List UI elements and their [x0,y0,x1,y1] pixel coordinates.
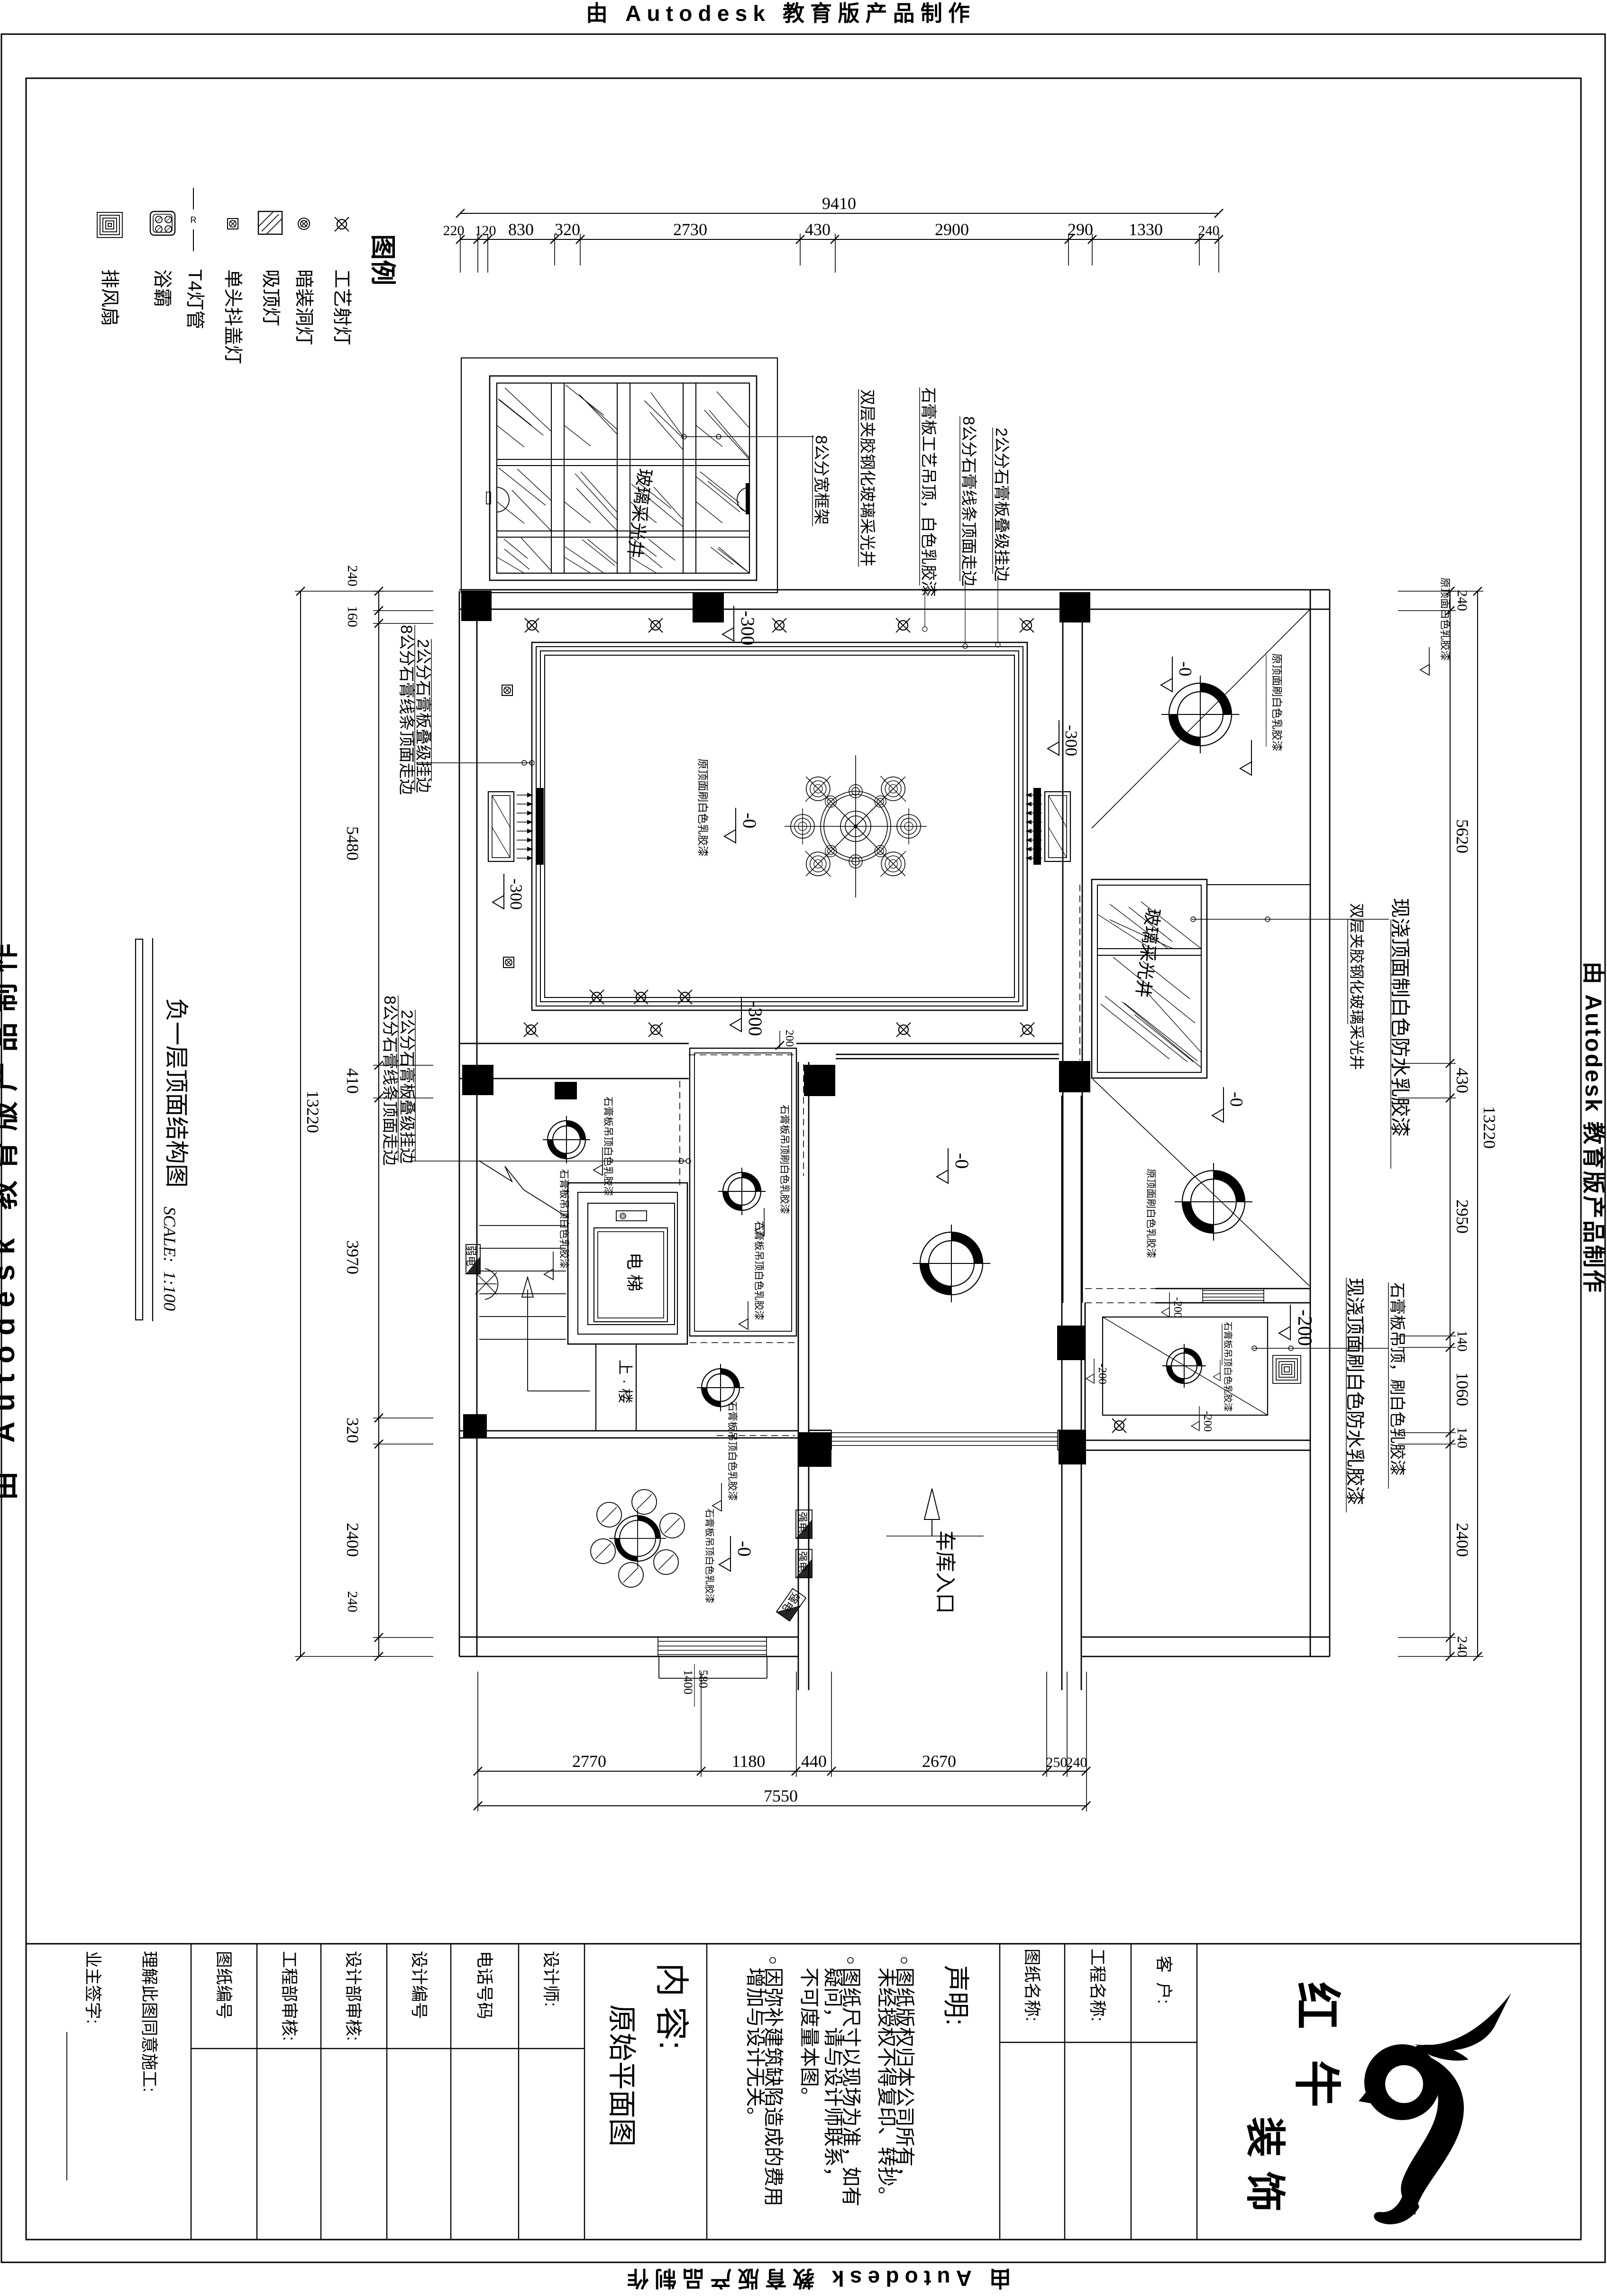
svg-text:430: 430 [1453,1068,1472,1093]
svg-text:-0: -0 [734,1541,755,1556]
svg-text:-0: -0 [1175,661,1195,677]
svg-text:单头抖盖灯: 单头抖盖灯 [222,269,243,364]
svg-text:1400: 1400 [681,1670,695,1694]
svg-text:250: 250 [1046,1755,1068,1770]
svg-text:理解此图同意施工:: 理解此图同意施工: [140,1951,159,2092]
svg-text:-300: -300 [745,1001,766,1036]
svg-text:业主签字:: 业主签字: [83,1951,103,2024]
svg-text:2400: 2400 [343,1523,362,1557]
svg-text:240: 240 [345,1591,360,1612]
svg-text:石膏板吊顶白色乳胶漆: 石膏板吊顶白色乳胶漆 [753,1221,764,1320]
svg-text:原顶面刷白色乳胶漆: 原顶面刷白色乳胶漆 [697,759,709,857]
svg-text:-200: -200 [1201,1411,1214,1432]
svg-text:石膏板吊顶，刷白色乳胶漆: 石膏板吊顶，刷白色乳胶漆 [1388,1282,1406,1476]
svg-text:石膏板吊顶白色乳胶漆: 石膏板吊顶白色乳胶漆 [727,1401,738,1501]
svg-text:2公分石膏板叠级挂边: 2公分石膏板叠级挂边 [398,1010,416,1164]
svg-text:580: 580 [696,1670,710,1688]
svg-text:8公分石膏线条顶面走边: 8公分石膏线条顶面走边 [381,996,399,1166]
svg-text:声明:: 声明: [941,1965,971,2026]
svg-text:320: 320 [343,1418,362,1443]
svg-text:客 户:: 客 户: [1154,1956,1174,2004]
svg-text:290: 290 [1068,220,1093,239]
svg-text:内 容:: 内 容: [652,1963,690,2050]
svg-text:排风扇: 排风扇 [99,269,120,326]
svg-text:工程部审核:: 工程部审核: [280,1951,299,2041]
svg-text:图例: 图例 [368,234,397,285]
svg-text:电话号码: 电话号码 [475,1951,494,2019]
svg-text:200: 200 [783,1030,795,1047]
svg-text:设计编号: 设计编号 [410,1951,429,2019]
svg-text:原顶面白色乳胶漆: 原顶面白色乳胶漆 [1439,577,1451,661]
svg-text:现浇顶面刷白色防水乳胶漆: 现浇顶面刷白色防水乳胶漆 [1344,1278,1365,1505]
svg-text:8公分石膏线条顶面走边: 8公分石膏线条顶面走边 [959,416,977,586]
svg-text:装: 装 [1242,2117,1287,2157]
svg-text:8公分石膏线条顶面走边: 8公分石膏线条顶面走边 [397,625,415,795]
svg-text:图纸名称:: 图纸名称: [1023,1948,1042,2022]
svg-text:440: 440 [801,1752,827,1771]
svg-text:石膏板工艺吊顶，白色乳胶漆: 石膏板工艺吊顶，白色乳胶漆 [919,387,937,597]
svg-text:140: 140 [1454,1427,1470,1448]
svg-text:SCALE: 1:100: SCALE: 1:100 [160,1207,179,1311]
svg-text:双层夹胶钢化玻璃采光井: 双层夹胶钢化玻璃采光井 [1348,903,1365,1070]
svg-text:未经授权不得复印、转抄。: 未经授权不得复印、转抄。 [876,1967,898,2206]
svg-text:浴霸: 浴霸 [152,269,173,307]
svg-text:负一层顶面结构图: 负一层顶面结构图 [163,998,190,1188]
svg-text:1330: 1330 [1129,220,1163,239]
svg-text:R: R [191,215,197,225]
svg-text:工程名称:: 工程名称: [1088,1948,1107,2022]
svg-text:原顶面刷白色乳胶漆: 原顶面刷白色乳胶漆 [1145,1169,1156,1258]
svg-text:吸顶灯: 吸顶灯 [260,269,281,326]
svg-text:不可度量本图。: 不可度量本图。 [798,1967,821,2107]
svg-text:140: 140 [1454,1330,1470,1352]
svg-text:饰: 饰 [1242,2171,1287,2212]
svg-text:410: 410 [343,1068,362,1094]
svg-text:石膏板吊顶白色乳胶漆: 石膏板吊顶白色乳胶漆 [603,1097,613,1196]
svg-text:2公分石膏板叠级挂边: 2公分石膏板叠级挂边 [414,639,432,793]
svg-text:暗装洞灯: 暗装洞灯 [293,269,314,345]
svg-text:T4灯管: T4灯管 [184,269,205,329]
svg-text:双层夹胶钢化玻璃采光井: 双层夹胶钢化玻璃采光井 [858,389,876,567]
svg-text:图纸编号: 图纸编号 [214,1951,234,2019]
svg-text:2公分石膏板叠级挂边: 2公分石膏板叠级挂边 [992,428,1010,582]
svg-text:2730: 2730 [673,220,707,239]
svg-text:-300: -300 [1062,725,1081,756]
svg-text:7550: 7550 [764,1786,798,1805]
svg-text:增加与设计无关。: 增加与设计无关。 [744,1967,767,2127]
svg-text:现浇顶面制白色防水乳胶漆: 现浇顶面制白色防水乳胶漆 [1389,898,1411,1137]
svg-text:弱电: 弱电 [465,1245,477,1266]
svg-text:3970: 3970 [343,1240,362,1274]
svg-text:430: 430 [805,220,831,239]
svg-text:石膏板吊顶刷白色乳胶漆: 石膏板吊顶刷白色乳胶漆 [779,1105,790,1214]
svg-text:240: 240 [1454,590,1470,611]
svg-text:240: 240 [1454,1636,1470,1657]
svg-text:强电: 强电 [796,1512,808,1533]
svg-text:石膏板吊顶白色乳胶漆: 石膏板吊顶白色乳胶漆 [704,1509,715,1603]
svg-text:5480: 5480 [343,826,362,860]
svg-text:2900: 2900 [935,220,969,239]
svg-text:2670: 2670 [922,1752,956,1771]
svg-text:240: 240 [345,565,360,586]
svg-text:工艺射灯: 工艺射灯 [331,269,352,345]
svg-text:-200: -200 [1096,1363,1108,1384]
svg-text:1180: 1180 [732,1752,766,1771]
svg-text:红: 红 [1290,1982,1343,2029]
svg-text:240: 240 [1198,223,1220,238]
svg-text:160: 160 [345,606,360,627]
svg-text:8公分宽框架: 8公分宽框架 [812,435,830,525]
svg-text:车库入口: 车库入口 [933,1530,957,1614]
svg-text:830: 830 [508,220,534,239]
svg-text:-0: -0 [1226,1092,1246,1107]
svg-text:-200: -200 [1171,1297,1184,1318]
svg-text:240: 240 [1066,1755,1087,1770]
svg-text:设计师:: 设计师: [541,1951,561,2007]
svg-text:2400: 2400 [1453,1523,1472,1557]
svg-text:设计部审核:: 设计部审核: [344,1951,363,2041]
svg-text:320: 320 [555,220,580,239]
svg-text:-300: -300 [507,878,526,910]
svg-text:120: 120 [475,223,496,238]
svg-text:原始平面图: 原始平面图 [606,2004,638,2147]
svg-text:2950: 2950 [1453,1199,1472,1234]
svg-text:220: 220 [443,223,465,238]
svg-text:-300: -300 [737,611,758,645]
svg-text:5620: 5620 [1453,819,1472,853]
svg-text:9410: 9410 [822,194,856,213]
svg-text:13220: 13220 [303,1090,322,1133]
svg-text:1060: 1060 [1453,1372,1472,1406]
svg-text:牛: 牛 [1290,2060,1343,2107]
svg-text:电 梯: 电 梯 [625,1253,644,1291]
svg-text:2770: 2770 [572,1752,606,1771]
svg-text:强电: 强电 [796,1551,808,1572]
svg-text:-200: -200 [1294,1309,1315,1346]
svg-text:上 · 楼: 上 · 楼 [617,1360,634,1403]
svg-text:原顶面刷白色乳胶漆: 原顶面刷白色乳胶漆 [1271,653,1283,751]
svg-text:13220: 13220 [1480,1106,1499,1149]
svg-text:疑问，请与设计师联系，: 疑问，请与设计师联系， [822,1967,844,2186]
svg-text:-0: -0 [739,813,760,828]
svg-text:石膏板吊顶白色乳胶漆: 石膏板吊顶白色乳胶漆 [1223,1322,1233,1412]
svg-text:-0: -0 [951,1153,973,1169]
